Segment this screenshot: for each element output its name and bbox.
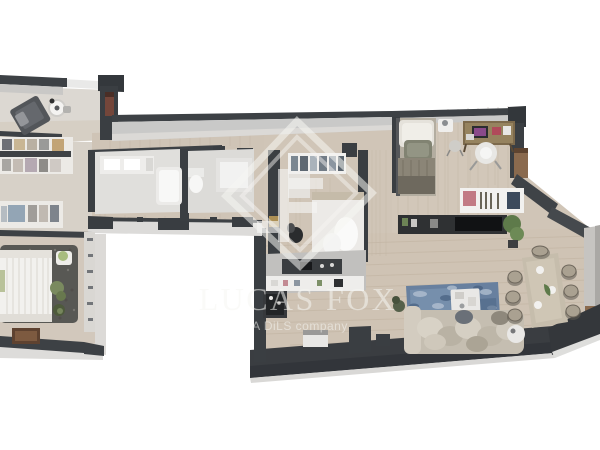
svg-text:LUCAS FOX: LUCAS FOX xyxy=(199,281,398,317)
svg-text:A DiLS company: A DiLS company xyxy=(252,319,348,333)
